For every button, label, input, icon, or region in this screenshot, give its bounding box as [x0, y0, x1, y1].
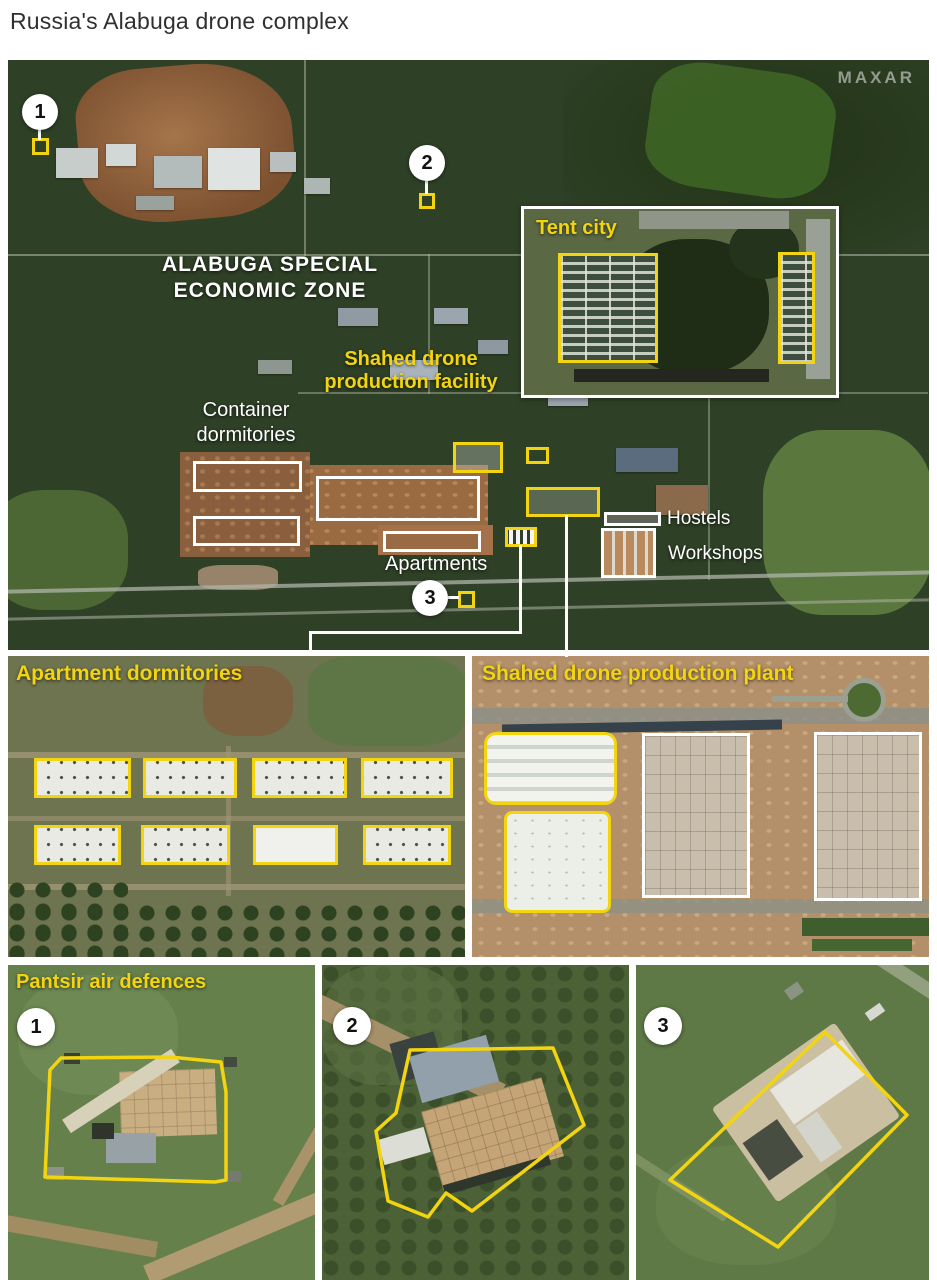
apartment-dormitories-label: Apartment dormitories	[16, 662, 242, 686]
pantsir-site-box-1	[32, 138, 49, 155]
map-marker-3: 3	[412, 580, 448, 616]
pantsir-label: Pantsir air defences	[16, 971, 206, 994]
plant-building-box	[642, 733, 750, 898]
container-dormitories-box	[193, 516, 300, 546]
terrain-meadow	[763, 430, 929, 615]
tent-city-label: Tent city	[536, 217, 617, 240]
connector-line	[519, 545, 522, 633]
zone-label: ALABUGA SPECIAL ECONOMIC ZONE	[120, 252, 420, 304]
dormitory-building-box	[252, 758, 347, 798]
terrain-field	[812, 939, 912, 951]
hostels-label: Hostels	[667, 508, 730, 530]
plant-building-box	[504, 811, 611, 913]
pantsir-site-box-2	[419, 193, 435, 209]
dormitory-building-box	[143, 758, 237, 798]
map-marker-2: 2	[409, 145, 445, 181]
road-line	[8, 816, 465, 821]
facility-box	[526, 447, 549, 464]
dormitory-building-box	[34, 758, 131, 798]
dormitory-building-box	[34, 825, 121, 865]
building	[56, 148, 98, 178]
plant-building-box	[814, 732, 922, 901]
connector-line	[309, 631, 522, 634]
pantsir-marker-3: 3	[644, 1007, 682, 1045]
building	[270, 152, 296, 172]
page-title: Russia's Alabuga drone complex	[10, 8, 349, 35]
infographic-page: Russia's Alabuga drone complex	[0, 0, 937, 1280]
marker-stem	[448, 596, 459, 599]
marker-stem	[425, 181, 428, 194]
shahed-plant-panel: Shahed drone production plant	[472, 656, 929, 957]
zone-label-line2: ECONOMIC ZONE	[120, 278, 420, 304]
tent-rows-box	[558, 253, 658, 363]
container-dormitories-label-line1: Container	[166, 398, 326, 423]
site-perimeter	[45, 1057, 226, 1182]
building	[154, 156, 202, 188]
shahed-facility-label-line2: production facility	[261, 371, 561, 394]
connector-line	[309, 631, 312, 656]
building	[434, 308, 468, 324]
container-dormitories-label: Container dormitories	[166, 398, 326, 448]
shahed-facility-label-line1: Shahed drone	[261, 348, 561, 371]
container-dormitories-label-line2: dormitories	[166, 423, 326, 448]
pantsir-site-3-panel: 3	[636, 965, 929, 1280]
construction-site-box	[316, 476, 480, 521]
roundabout	[842, 678, 886, 722]
site-perimeter	[670, 1032, 907, 1247]
building	[136, 196, 174, 210]
pantsir-site-1-panel: 1 Pantsir air defences	[8, 965, 315, 1280]
zone-label-line1: ALABUGA SPECIAL	[120, 252, 420, 278]
terrain-field	[802, 918, 929, 936]
main-satellite-map: MAXAR ALABUGA SPECIAL ECONOMIC ZONE Shah…	[8, 60, 929, 650]
building	[208, 148, 260, 190]
building	[304, 178, 330, 194]
maxar-watermark: MAXAR	[838, 68, 915, 88]
parking-lot	[639, 211, 789, 229]
marker-stem	[38, 130, 41, 140]
pantsir-marker-1: 1	[17, 1008, 55, 1046]
hostels-box	[604, 512, 661, 526]
apartment-dorm-box	[505, 527, 537, 547]
terrain-field	[308, 656, 465, 746]
container-dormitories-box	[193, 461, 302, 492]
building	[338, 308, 378, 326]
apartments-label: Apartments	[385, 553, 487, 576]
road-line	[772, 696, 848, 702]
apartments-box	[383, 531, 481, 552]
tent-rows-box	[778, 252, 815, 364]
pantsir-marker-2: 2	[333, 1007, 371, 1045]
dormitory-building-box	[363, 825, 451, 865]
facility-box	[453, 442, 503, 473]
pantsir-site-box-3	[458, 591, 475, 608]
pantsir-site-outline	[636, 965, 929, 1280]
dormitory-building-box	[361, 758, 453, 798]
connector-line	[565, 515, 568, 657]
building	[574, 369, 769, 382]
plant-building-box	[484, 732, 617, 805]
building	[106, 144, 136, 166]
site-perimeter	[376, 1048, 584, 1217]
shahed-facility-label: Shahed drone production facility	[261, 348, 561, 394]
road-line	[304, 60, 306, 256]
tree-strip	[8, 881, 128, 957]
workshops-box	[601, 528, 656, 578]
building	[616, 448, 678, 472]
pantsir-site-outline	[322, 965, 629, 1280]
dormitory-building-box	[253, 825, 338, 865]
shahed-plant-label: Shahed drone production plant	[482, 662, 794, 686]
pantsir-site-2-panel: 2	[322, 965, 629, 1280]
tent-city-inset: Tent city	[521, 206, 839, 398]
map-marker-1: 1	[22, 94, 58, 130]
production-plant-box	[526, 487, 600, 517]
dormitory-building-box	[141, 825, 230, 865]
workshops-label: Workshops	[668, 543, 763, 565]
pantsir-site-outline	[8, 965, 315, 1280]
apartment-dormitories-panel: Apartment dormitories	[8, 656, 465, 957]
